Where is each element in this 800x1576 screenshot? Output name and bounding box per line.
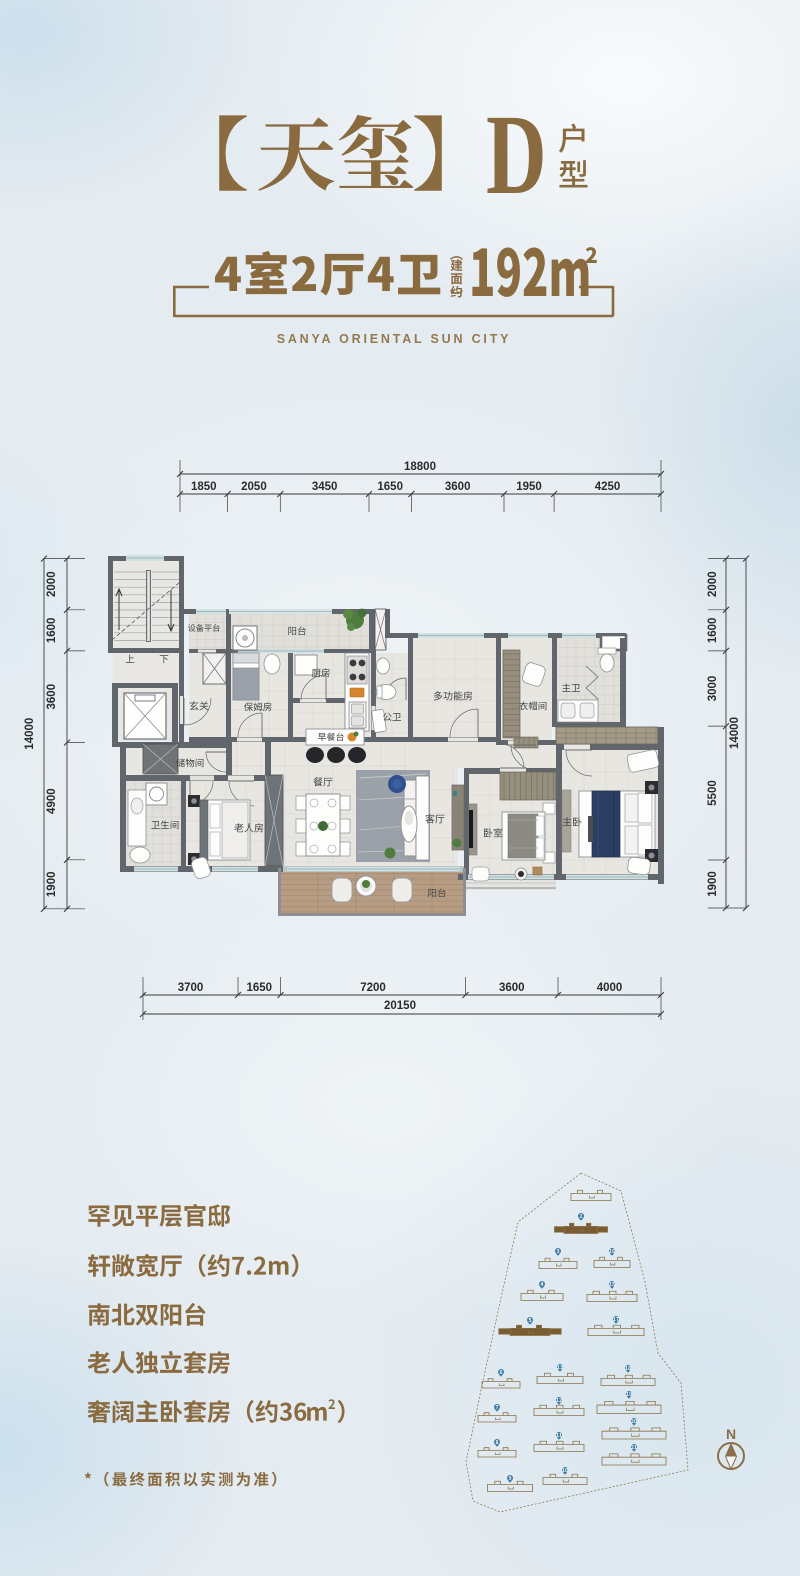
svg-text:2000: 2000 [707,571,719,597]
svg-text:14000: 14000 [24,718,36,750]
svg-text:1600: 1600 [707,618,719,644]
svg-text:14000: 14000 [729,717,741,749]
svg-text:4250: 4250 [595,481,621,493]
svg-text:1650: 1650 [246,982,272,994]
svg-text:3600: 3600 [445,481,471,493]
svg-text:1850: 1850 [191,481,217,493]
svg-text:3450: 3450 [312,481,338,493]
svg-text:5500: 5500 [707,780,719,806]
svg-text:3000: 3000 [707,676,719,702]
svg-text:20150: 20150 [384,1000,416,1012]
svg-text:2000: 2000 [46,571,58,597]
svg-text:3600: 3600 [46,684,58,710]
svg-text:1650: 1650 [377,481,403,493]
svg-text:D: D [486,90,547,218]
svg-text:18800: 18800 [404,461,436,473]
svg-text:1900: 1900 [707,871,719,897]
svg-text:4000: 4000 [597,982,623,994]
svg-text:3700: 3700 [178,982,204,994]
svg-text:7200: 7200 [360,982,386,994]
svg-text:3600: 3600 [499,982,525,994]
svg-text:1900: 1900 [46,872,58,898]
svg-text:N: N [726,1426,736,1442]
svg-text:4900: 4900 [46,788,58,814]
svg-text:SANYA ORIENTAL SUN CITY: SANYA ORIENTAL SUN CITY [277,332,512,346]
svg-text:2050: 2050 [241,481,267,493]
svg-text:1950: 1950 [516,481,542,493]
svg-text:1600: 1600 [46,618,58,644]
